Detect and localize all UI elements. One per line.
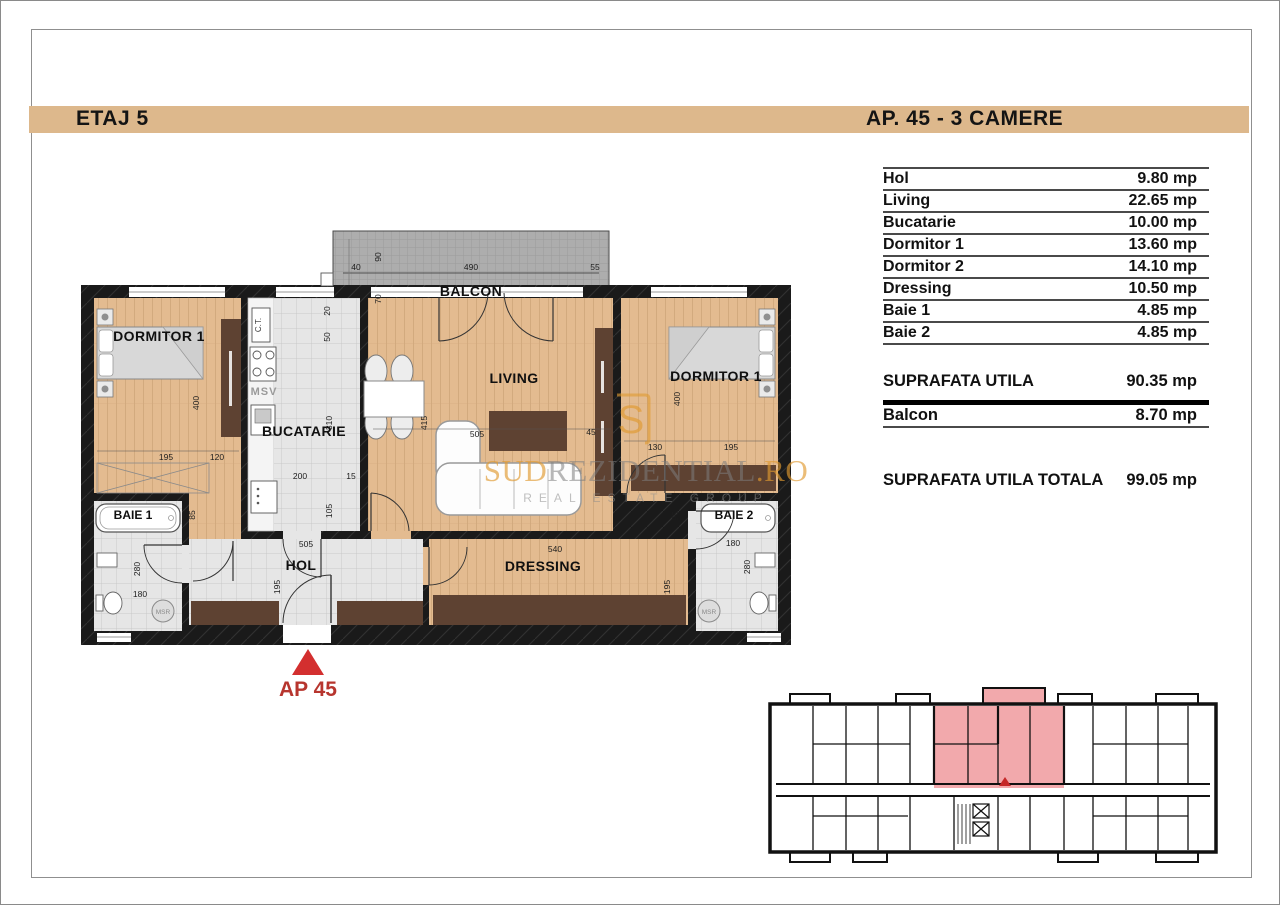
total-row: SUPRAFATA UTILA TOTALA 99.05 mp <box>883 470 1209 490</box>
floor-plan-svg: DORMITOR 1 BUCATARIE LIVING DORMITOR 1 B… <box>71 223 801 705</box>
subtotal-value: 90.35 mp <box>1126 372 1209 391</box>
table-row: Dormitor 1 13.60 mp <box>883 235 1209 257</box>
dim-label: 505 <box>470 429 484 439</box>
label-dormitor1: DORMITOR 1 <box>113 328 205 344</box>
dim-label: 130 <box>648 442 662 452</box>
dim-label: 40 <box>351 262 361 272</box>
room-name: Dormitor 2 <box>883 258 964 276</box>
dim-label: 195 <box>662 580 672 594</box>
dim-label: 50 <box>322 332 332 342</box>
dim-label: 20 <box>322 306 332 316</box>
balcony-label: Balcon <box>883 406 938 425</box>
toilet-baie2 <box>750 592 776 614</box>
floorplan-page: ETAJ 5 AP. 45 - 3 CAMERE Hol 9.80 mp Liv… <box>0 0 1280 905</box>
room-area: 13.60 mp <box>1129 236 1209 254</box>
coffee-table <box>489 411 567 451</box>
label-msr-right: MSR <box>702 609 717 616</box>
label-balcon: BALCON <box>440 283 502 299</box>
subtotal-label: SUPRAFATA UTILA <box>883 372 1034 391</box>
table-row: Baie 2 4.85 mp <box>883 323 1209 345</box>
dim-label: 105 <box>324 504 334 518</box>
sink-baie2 <box>755 553 775 567</box>
room-area: 4.85 mp <box>1137 302 1209 320</box>
dim-label: 15 <box>346 471 356 481</box>
room-name: Dormitor 1 <box>883 236 964 254</box>
dim-label: 505 <box>299 539 313 549</box>
key-plan-svg <box>758 684 1228 874</box>
sink-baie1 <box>97 553 117 567</box>
closet-hol-right <box>337 601 423 625</box>
room-name: Baie 1 <box>883 302 930 320</box>
tv-unit-handle <box>601 421 604 453</box>
dim-label: 195 <box>159 452 173 462</box>
label-msr-left: MSR <box>156 609 171 616</box>
total-value: 99.05 mp <box>1126 471 1209 490</box>
label-dormitor2: DORMITOR 1 <box>670 368 762 384</box>
room-bucatarie <box>274 298 360 531</box>
apartment-title: AP. 45 - 3 CAMERE <box>866 107 1063 131</box>
building-key-plan <box>758 684 1228 874</box>
room-area: 14.10 mp <box>1129 258 1209 276</box>
total-label: SUPRAFATA UTILA TOTALA <box>883 471 1103 490</box>
table-row: Dormitor 2 14.10 mp <box>883 257 1209 279</box>
apartment-marker-triangle <box>292 649 324 675</box>
tv-unit <box>595 328 613 496</box>
dim-label: 400 <box>191 396 201 410</box>
dim-label: 415 <box>419 416 429 430</box>
dim-label: 180 <box>133 589 147 599</box>
dim-label: 55 <box>590 262 600 272</box>
dim-label: 195 <box>724 442 738 452</box>
dim-label: 180 <box>726 538 740 548</box>
subtotal-row: SUPRAFATA UTILA 90.35 mp <box>883 371 1209 391</box>
dim-label: 310 <box>324 416 334 430</box>
room-name: Dressing <box>883 280 951 298</box>
room-area: 9.80 mp <box>1137 170 1209 188</box>
room-area: 10.50 mp <box>1129 280 1209 298</box>
room-name: Bucatarie <box>883 214 956 232</box>
dim-label: 70 <box>373 294 383 304</box>
toilet-baie1 <box>96 592 122 614</box>
label-baie1: BAIE 1 <box>114 508 153 522</box>
area-table: Hol 9.80 mp Living 22.65 mp Bucatarie 10… <box>883 167 1209 490</box>
room-area: 4.85 mp <box>1137 324 1209 342</box>
fridge-icon <box>251 481 277 513</box>
balcony-value: 8.70 mp <box>1136 406 1209 425</box>
label-living: LIVING <box>489 370 538 386</box>
dim-label: 90 <box>373 252 383 262</box>
table-row: Bucatarie 10.00 mp <box>883 213 1209 235</box>
balcony-row: Balcon 8.70 mp <box>883 405 1209 428</box>
dim-label: 490 <box>464 262 478 272</box>
room-name: Hol <box>883 170 909 188</box>
room-name: Living <box>883 192 930 210</box>
label-baie2: BAIE 2 <box>715 508 754 522</box>
tv-unit-handle <box>601 361 604 393</box>
label-hol: HOL <box>286 557 317 573</box>
apartment-floor-plan: DORMITOR 1 BUCATARIE LIVING DORMITOR 1 B… <box>71 223 801 705</box>
table-row: Baie 1 4.85 mp <box>883 301 1209 323</box>
dim-label: 45 <box>586 427 596 437</box>
dim-label: 400 <box>672 392 682 406</box>
apartment-marker-label: AP 45 <box>279 678 337 701</box>
table-row: Living 22.65 mp <box>883 191 1209 213</box>
stove-icon <box>250 347 276 381</box>
floor-title: ETAJ 5 <box>76 107 149 131</box>
dim-label: 200 <box>293 471 307 481</box>
dim-label: 280 <box>132 562 142 576</box>
wardrobe-handle <box>229 351 232 406</box>
closet-hol-left <box>191 601 279 625</box>
wardrobe-dressing <box>433 595 686 625</box>
dim-label: 120 <box>210 452 224 462</box>
room-area: 10.00 mp <box>1129 214 1209 232</box>
wardrobe-dormitor2 <box>631 465 776 491</box>
label-msv: MSV <box>251 386 278 398</box>
room-area: 22.65 mp <box>1129 192 1209 210</box>
room-name: Baie 2 <box>883 324 930 342</box>
label-ct: C.T. <box>254 318 263 332</box>
dim-label: 540 <box>548 544 562 554</box>
dim-label: 95 <box>670 511 680 521</box>
dim-label: 195 <box>272 580 282 594</box>
header-bar: ETAJ 5 AP. 45 - 3 CAMERE <box>29 106 1249 133</box>
table-row: Hol 9.80 mp <box>883 167 1209 191</box>
table-row: Dressing 10.50 mp <box>883 279 1209 301</box>
dim-label: 280 <box>742 560 752 574</box>
dim-label: 85 <box>187 510 197 520</box>
label-dressing: DRESSING <box>505 558 581 574</box>
